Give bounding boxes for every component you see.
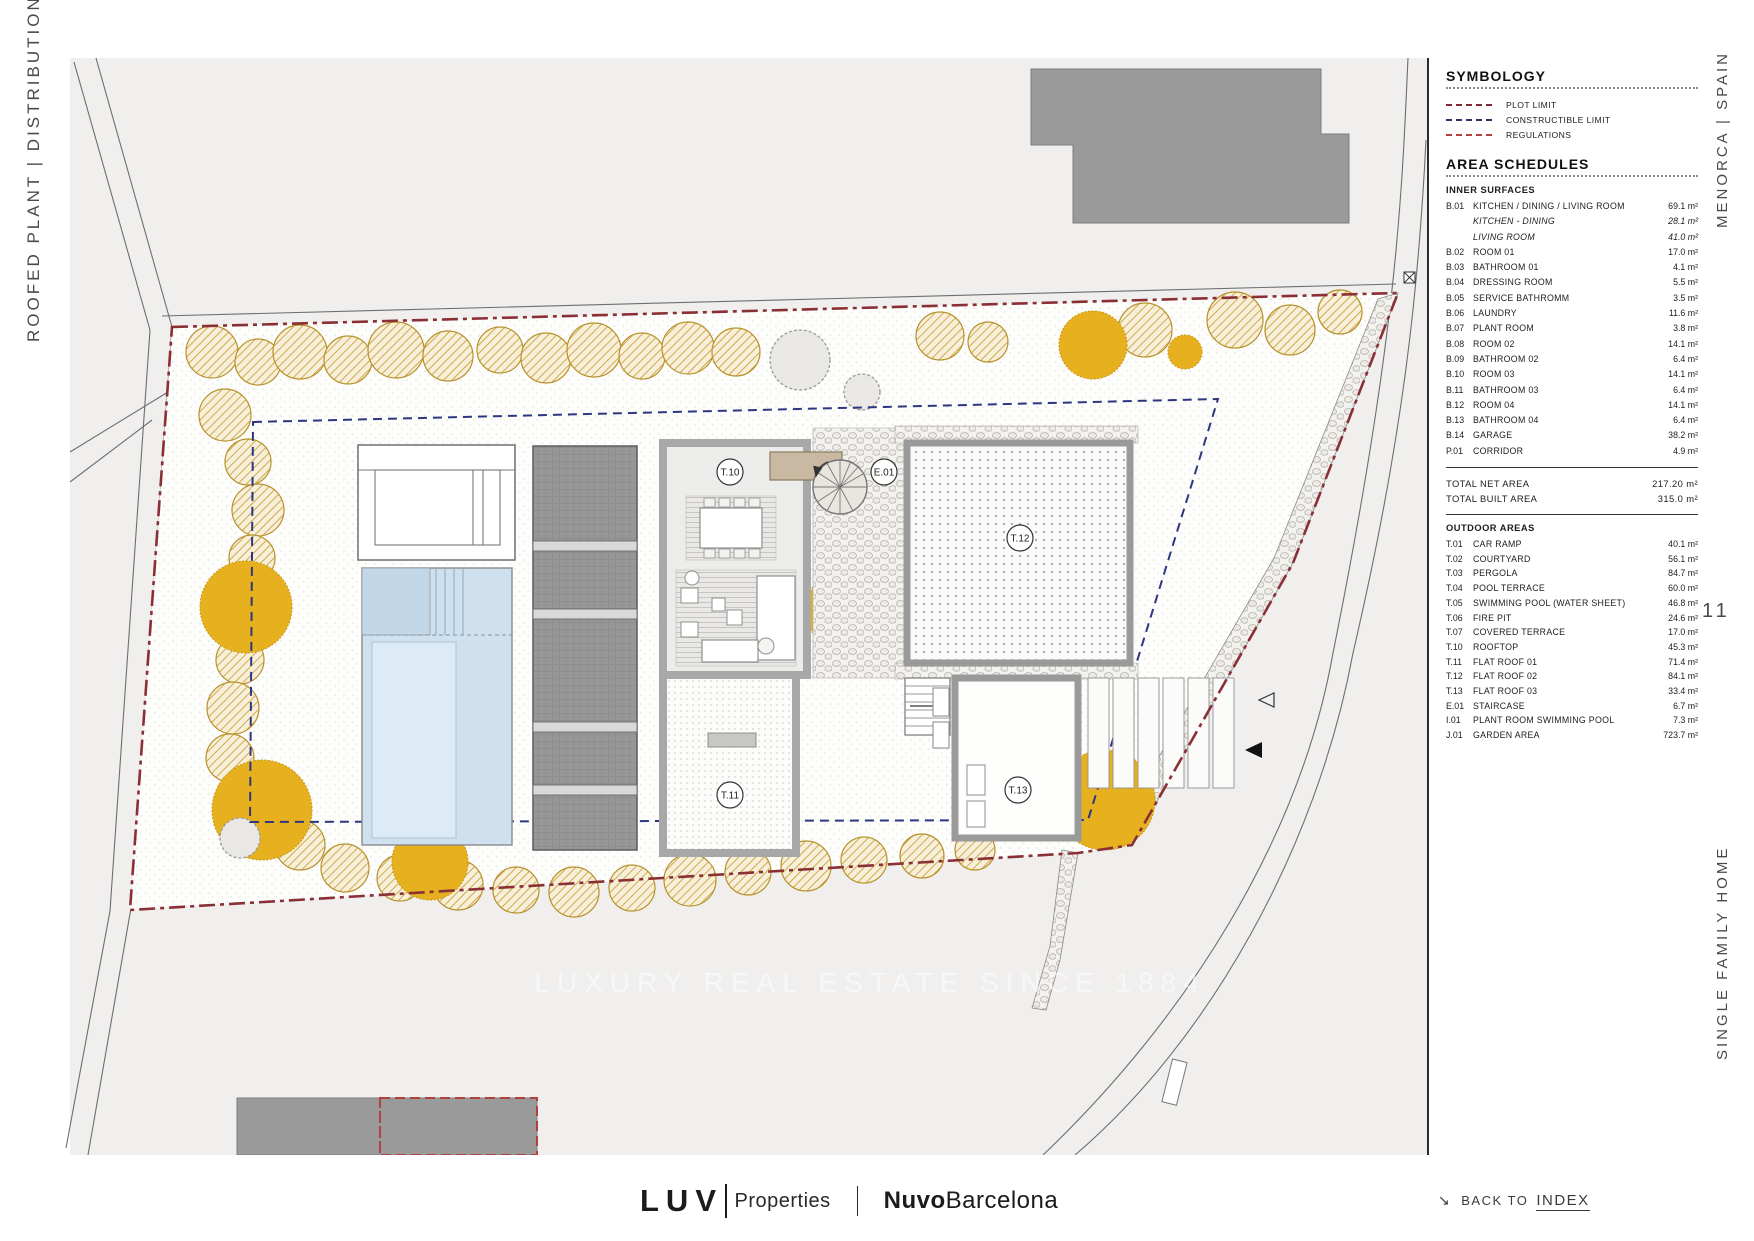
area-row: T.05SWIMMING POOL (WATER SHEET)46.8 m² bbox=[1446, 596, 1698, 611]
area-name: FLAT ROOF 02 bbox=[1473, 669, 1650, 684]
area-name: ROOM 04 bbox=[1473, 398, 1650, 413]
area-code: B.06 bbox=[1446, 306, 1473, 321]
area-name: PLANT ROOM SWIMMING POOL bbox=[1473, 713, 1650, 728]
label-e01: E.01 bbox=[874, 468, 895, 479]
area-name: COVERED TERRACE bbox=[1473, 625, 1650, 640]
label-t11: T.11 bbox=[721, 791, 740, 802]
total-built-value: 315.0 m² bbox=[1658, 491, 1698, 506]
watermark-text: LUXURY REAL ESTATE SINCE 1884 bbox=[534, 967, 1205, 998]
area-code: T.10 bbox=[1446, 640, 1473, 655]
legend-row: REGULATIONS bbox=[1446, 127, 1698, 142]
rule bbox=[1446, 514, 1698, 515]
area-code: T.03 bbox=[1446, 566, 1473, 581]
area-row: B.10ROOM 0314.1 m² bbox=[1446, 367, 1698, 382]
area-code: P.01 bbox=[1446, 444, 1473, 459]
area-row: T.03PERGOLA84.7 m² bbox=[1446, 566, 1698, 581]
area-value: 38.2 m² bbox=[1650, 428, 1698, 443]
pergola-structure bbox=[358, 445, 515, 560]
area-name: LIVING ROOM bbox=[1473, 230, 1650, 245]
area-row: B.06LAUNDRY11.6 m² bbox=[1446, 306, 1698, 321]
total-net-value: 217.20 m² bbox=[1652, 476, 1698, 491]
area-code: T.04 bbox=[1446, 581, 1473, 596]
area-row: B.03BATHROOM 014.1 m² bbox=[1446, 260, 1698, 275]
area-row: T.13FLAT ROOF 0333.4 m² bbox=[1446, 684, 1698, 699]
rule bbox=[1446, 467, 1698, 468]
area-value: 84.1 m² bbox=[1650, 669, 1698, 684]
area-name: LAUNDRY bbox=[1473, 306, 1650, 321]
area-name: ROOFTOP bbox=[1473, 640, 1650, 655]
total-built-row: TOTAL BUILT AREA 315.0 m² bbox=[1446, 491, 1698, 506]
flat-roof-02 bbox=[907, 443, 1130, 663]
area-code: B.09 bbox=[1446, 352, 1473, 367]
area-code: B.11 bbox=[1446, 383, 1473, 398]
area-value: 6.4 m² bbox=[1650, 413, 1698, 428]
area-name: DRESSING ROOM bbox=[1473, 275, 1650, 290]
outdoor-areas-table: T.01CAR RAMP40.1 m²T.02COURTYARD56.1 m²T… bbox=[1446, 537, 1698, 743]
logo-bar bbox=[725, 1184, 727, 1218]
area-value: 41.0 m² bbox=[1650, 230, 1698, 245]
page-number: 11 bbox=[1702, 600, 1731, 623]
area-value: 3.5 m² bbox=[1650, 291, 1698, 306]
location-title: MENORCA | SPAIN bbox=[1714, 58, 1731, 228]
area-code: B.04 bbox=[1446, 275, 1473, 290]
legend-dash-swatch bbox=[1446, 104, 1492, 106]
area-code: B.10 bbox=[1446, 367, 1473, 382]
area-row: B.05SERVICE BATHROMM3.5 m² bbox=[1446, 291, 1698, 306]
area-value: 17.0 m² bbox=[1650, 625, 1698, 640]
area-name: FLAT ROOF 01 bbox=[1473, 655, 1650, 670]
area-code: I.01 bbox=[1446, 713, 1473, 728]
area-value: 69.1 m² bbox=[1650, 199, 1698, 214]
area-code: B.08 bbox=[1446, 337, 1473, 352]
dotted-rule bbox=[1446, 86, 1698, 89]
area-row: KITCHEN - DINING28.1 m² bbox=[1446, 214, 1698, 229]
area-value: 17.0 m² bbox=[1650, 245, 1698, 260]
legend-row: CONSTRUCTIBLE LIMIT bbox=[1446, 112, 1698, 127]
area-value: 5.5 m² bbox=[1650, 275, 1698, 290]
area-row: B.09BATHROOM 026.4 m² bbox=[1446, 352, 1698, 367]
area-row: T.07COVERED TERRACE17.0 m² bbox=[1446, 625, 1698, 640]
area-name: KITCHEN / DINING / LIVING ROOM bbox=[1473, 199, 1650, 214]
area-row: B.13BATHROOM 046.4 m² bbox=[1446, 413, 1698, 428]
neighbour-building-top bbox=[1031, 69, 1349, 223]
area-code: B.14 bbox=[1446, 428, 1473, 443]
index-link-text[interactable]: INDEX bbox=[1536, 1192, 1589, 1211]
area-value: 7.3 m² bbox=[1650, 713, 1698, 728]
area-value: 4.9 m² bbox=[1650, 444, 1698, 459]
area-code: B.05 bbox=[1446, 291, 1473, 306]
area-name: PLANT ROOM bbox=[1473, 321, 1650, 336]
area-row: J.01GARDEN AREA723.7 m² bbox=[1446, 728, 1698, 743]
area-row: B.14GARAGE38.2 m² bbox=[1446, 428, 1698, 443]
area-name: COURTYARD bbox=[1473, 552, 1650, 567]
area-value: 14.1 m² bbox=[1650, 367, 1698, 382]
area-value: 14.1 m² bbox=[1650, 398, 1698, 413]
area-code bbox=[1446, 230, 1473, 245]
flat-roof-03 bbox=[955, 678, 1078, 838]
total-built-label: TOTAL BUILT AREA bbox=[1446, 491, 1658, 506]
area-name: GARDEN AREA bbox=[1473, 728, 1650, 743]
legend-row: PLOT LIMIT bbox=[1446, 97, 1698, 112]
area-schedules-title: AREA SCHEDULES bbox=[1446, 156, 1698, 172]
sheet: T.10 E.01 T.12 T.11 T.13 LUXURY REAL EST… bbox=[0, 0, 1754, 1241]
area-code: T.01 bbox=[1446, 537, 1473, 552]
area-value: 11.6 m² bbox=[1650, 306, 1698, 321]
area-row: T.04POOL TERRACE60.0 m² bbox=[1446, 581, 1698, 596]
area-name: SWIMMING POOL (WATER SHEET) bbox=[1473, 596, 1650, 611]
luv-logo: LUV bbox=[640, 1183, 723, 1219]
info-panel: SYMBOLOGY PLOT LIMITCONSTRUCTIBLE LIMITR… bbox=[1446, 68, 1698, 743]
back-to-label: BACK TO bbox=[1461, 1193, 1528, 1208]
area-row: T.11FLAT ROOF 0171.4 m² bbox=[1446, 655, 1698, 670]
area-row: B.02ROOM 0117.0 m² bbox=[1446, 245, 1698, 260]
area-value: 71.4 m² bbox=[1650, 655, 1698, 670]
area-row: P.01CORRIDOR4.9 m² bbox=[1446, 444, 1698, 459]
inner-surfaces-title: INNER SURFACES bbox=[1446, 185, 1698, 195]
area-value: 6.4 m² bbox=[1650, 352, 1698, 367]
label-t13: T.13 bbox=[1009, 786, 1028, 797]
brand-separator bbox=[857, 1186, 858, 1216]
area-row: I.01PLANT ROOM SWIMMING POOL7.3 m² bbox=[1446, 713, 1698, 728]
area-value: 723.7 m² bbox=[1650, 728, 1698, 743]
area-code: B.12 bbox=[1446, 398, 1473, 413]
panel-divider bbox=[1427, 58, 1429, 1155]
area-value: 6.7 m² bbox=[1650, 699, 1698, 714]
legend-label: REGULATIONS bbox=[1506, 130, 1571, 140]
area-row: B.08ROOM 0214.1 m² bbox=[1446, 337, 1698, 352]
area-name: CAR RAMP bbox=[1473, 537, 1650, 552]
area-row: T.12FLAT ROOF 0284.1 m² bbox=[1446, 669, 1698, 684]
area-code: T.13 bbox=[1446, 684, 1473, 699]
area-code: B.07 bbox=[1446, 321, 1473, 336]
area-row: B.01KITCHEN / DINING / LIVING ROOM69.1 m… bbox=[1446, 199, 1698, 214]
dotted-rule bbox=[1446, 174, 1698, 177]
brand-logos: LUV Properties Nuvo Barcelona bbox=[640, 1183, 1058, 1219]
label-t12: T.12 bbox=[1011, 534, 1030, 545]
area-code: B.03 bbox=[1446, 260, 1473, 275]
area-row: B.07PLANT ROOM3.8 m² bbox=[1446, 321, 1698, 336]
area-value: 56.1 m² bbox=[1650, 552, 1698, 567]
area-name: PERGOLA bbox=[1473, 566, 1650, 581]
swimming-pool bbox=[362, 568, 512, 845]
legend-label: PLOT LIMIT bbox=[1506, 100, 1557, 110]
area-code: B.01 bbox=[1446, 199, 1473, 214]
car-ramp bbox=[533, 446, 637, 850]
legend-dash-swatch bbox=[1446, 134, 1492, 136]
luv-properties-label: Properties bbox=[735, 1190, 831, 1213]
area-value: 14.1 m² bbox=[1650, 337, 1698, 352]
nuvo-logo-light: Barcelona bbox=[946, 1187, 1059, 1215]
area-name: FLAT ROOF 03 bbox=[1473, 684, 1650, 699]
area-name: BATHROOM 03 bbox=[1473, 383, 1650, 398]
area-row: LIVING ROOM41.0 m² bbox=[1446, 230, 1698, 245]
area-code: T.07 bbox=[1446, 625, 1473, 640]
nuvo-logo-bold: Nuvo bbox=[884, 1187, 946, 1215]
area-name: KITCHEN - DINING bbox=[1473, 214, 1650, 229]
total-net-label: TOTAL NET AREA bbox=[1446, 476, 1652, 491]
area-value: 60.0 m² bbox=[1650, 581, 1698, 596]
area-code: B.13 bbox=[1446, 413, 1473, 428]
area-value: 4.1 m² bbox=[1650, 260, 1698, 275]
area-code: T.11 bbox=[1446, 655, 1473, 670]
total-net-row: TOTAL NET AREA 217.20 m² bbox=[1446, 476, 1698, 491]
area-code: T.06 bbox=[1446, 611, 1473, 626]
flat-roof-01 bbox=[663, 675, 796, 853]
area-code: B.02 bbox=[1446, 245, 1473, 260]
label-t10: T.10 bbox=[721, 468, 740, 479]
legend-label: CONSTRUCTIBLE LIMIT bbox=[1506, 115, 1611, 125]
area-name: FIRE PIT bbox=[1473, 611, 1650, 626]
area-name: CORRIDOR bbox=[1473, 444, 1650, 459]
area-name: ROOM 03 bbox=[1473, 367, 1650, 382]
sheet-title-left: ROOFED PLANT | DISTRIBUTION bbox=[24, 62, 44, 342]
area-row: B.11BATHROOM 036.4 m² bbox=[1446, 383, 1698, 398]
area-name: ROOM 02 bbox=[1473, 337, 1650, 352]
project-title: SINGLE FAMILY HOME bbox=[1714, 840, 1731, 1060]
area-row: T.02COURTYARD56.1 m² bbox=[1446, 552, 1698, 567]
legend-dash-swatch bbox=[1446, 119, 1492, 121]
area-name: POOL TERRACE bbox=[1473, 581, 1650, 596]
area-name: GARAGE bbox=[1473, 428, 1650, 443]
back-to-index-link[interactable]: ↘ BACK TO INDEX bbox=[1438, 1192, 1590, 1211]
area-value: 3.8 m² bbox=[1650, 321, 1698, 336]
spiral-staircase bbox=[813, 460, 867, 514]
area-row: T.01CAR RAMP40.1 m² bbox=[1446, 537, 1698, 552]
area-name: SERVICE BATHROMM bbox=[1473, 291, 1650, 306]
area-code: T.02 bbox=[1446, 552, 1473, 567]
outdoor-areas-title: OUTDOOR AREAS bbox=[1446, 523, 1698, 533]
area-value: 6.4 m² bbox=[1650, 383, 1698, 398]
area-name: STAIRCASE bbox=[1473, 699, 1650, 714]
area-row: B.04DRESSING ROOM5.5 m² bbox=[1446, 275, 1698, 290]
area-value: 24.6 m² bbox=[1650, 611, 1698, 626]
area-row: T.10ROOFTOP45.3 m² bbox=[1446, 640, 1698, 655]
area-value: 84.7 m² bbox=[1650, 566, 1698, 581]
area-value: 46.8 m² bbox=[1650, 596, 1698, 611]
area-code: T.12 bbox=[1446, 669, 1473, 684]
area-code: E.01 bbox=[1446, 699, 1473, 714]
area-row: T.06FIRE PIT24.6 m² bbox=[1446, 611, 1698, 626]
area-name: ROOM 01 bbox=[1473, 245, 1650, 260]
area-code: T.05 bbox=[1446, 596, 1473, 611]
southeast-arrow-icon: ↘ bbox=[1438, 1192, 1451, 1209]
area-code: J.01 bbox=[1446, 728, 1473, 743]
area-name: BATHROOM 02 bbox=[1473, 352, 1650, 367]
area-value: 33.4 m² bbox=[1650, 684, 1698, 699]
area-code bbox=[1446, 214, 1473, 229]
neighbour-building-bottom bbox=[237, 1098, 537, 1155]
area-row: B.12ROOM 0414.1 m² bbox=[1446, 398, 1698, 413]
symbology-title: SYMBOLOGY bbox=[1446, 68, 1698, 84]
area-value: 40.1 m² bbox=[1650, 537, 1698, 552]
area-name: BATHROOM 04 bbox=[1473, 413, 1650, 428]
symbology-legend: PLOT LIMITCONSTRUCTIBLE LIMITREGULATIONS bbox=[1446, 97, 1698, 142]
area-value: 28.1 m² bbox=[1650, 214, 1698, 229]
area-name: BATHROOM 01 bbox=[1473, 260, 1650, 275]
area-value: 45.3 m² bbox=[1650, 640, 1698, 655]
area-row: E.01STAIRCASE6.7 m² bbox=[1446, 699, 1698, 714]
inner-surfaces-table: B.01KITCHEN / DINING / LIVING ROOM69.1 m… bbox=[1446, 199, 1698, 459]
